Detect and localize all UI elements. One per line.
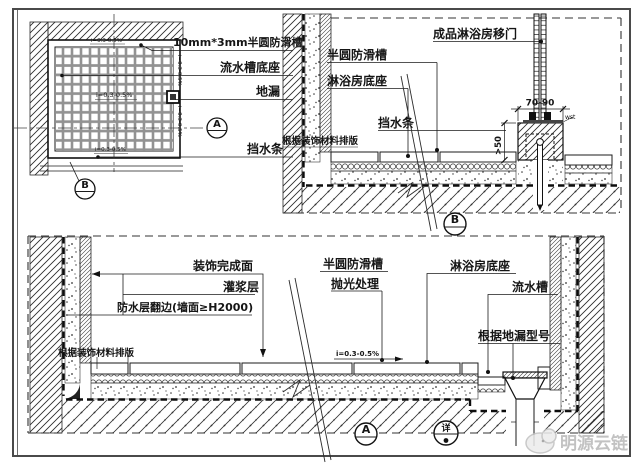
slope-label-center: i=0.3-0.5% (96, 91, 132, 99)
callout-door: 成品淋浴房移门 (433, 26, 517, 41)
section-a: 装饰完成面 灌浆层 防水层翻边(墙面≥H2000) 根据装饰材料排版 半圆防滑槽… (28, 236, 604, 462)
section-b: 70-90 >50 wst 成品淋浴房移门 半圆防滑槽 淋浴房底座 (282, 14, 621, 235)
callout-base: 淋浴房底座 (450, 258, 510, 273)
callout-channel-base: 流水槽底座 (220, 60, 280, 75)
dim-seal: wst (563, 114, 576, 122)
callout-grout: 灌浆层 (222, 279, 259, 294)
slope-label-right-1: i=0.3-0.5% (176, 55, 182, 86)
callout-waterproof: 防水层翻边(墙面≥H2000) (117, 300, 253, 314)
callout-drain: 地漏 (256, 84, 280, 99)
watermark-text: 明源云链 (560, 433, 629, 454)
waterproof-fillet (65, 384, 80, 399)
callout-drain-model: 根据地漏型号 (478, 328, 550, 343)
slope-label: i=0.3-0.5% (336, 350, 379, 358)
svg-text:A: A (213, 119, 221, 130)
svg-text:>50: >50 (494, 136, 504, 155)
svg-text:B: B (81, 180, 89, 191)
section-a-wall-right (550, 237, 604, 433)
callout-finish: 装饰完成面 (192, 258, 253, 273)
drain-flange (503, 372, 547, 378)
callout-channel: 流水槽 (512, 279, 548, 294)
drawing-canvas: i=0.3-0.5% i=0.3-0.5% i=0.3-0.5% i=0.3-0… (0, 0, 640, 467)
callout-polish: 抛光处理 (331, 276, 379, 291)
section-a-callouts-right: 半圆防滑槽 抛光处理 淋浴房底座 流水槽 根据地漏型号 i=0.3-0.5% (320, 256, 560, 380)
detail-bubble: 详 (434, 421, 458, 445)
svg-text:70-90: 70-90 (526, 99, 555, 109)
section-a-bubble: A (355, 423, 377, 445)
slope-label-top: i=0.3-0.5% (91, 38, 122, 44)
slope-label-bottom: i=0.3-0.5% (95, 147, 126, 153)
svg-text:B: B (451, 213, 459, 226)
section-b-wall (283, 14, 331, 213)
section-marker-b: B (70, 162, 95, 199)
slope-label-right-2: i=0.3-0.5% (176, 106, 182, 137)
callout-base: 淋浴房底座 (327, 73, 387, 88)
plan-view: i=0.3-0.5% i=0.3-0.5% i=0.3-0.5% i=0.3-0… (14, 14, 303, 199)
section-b-bubble: B (444, 213, 466, 235)
callout-layout: 根据装饰材料排版 (58, 347, 135, 359)
callout-layout: 根据装饰材料排版 (282, 135, 359, 147)
callout-groove: 半圆防滑槽 (323, 256, 383, 271)
svg-text:详: 详 (441, 422, 450, 434)
plan-wall-left (30, 22, 48, 175)
construction-detail-drawing: i=0.3-0.5% i=0.3-0.5% i=0.3-0.5% i=0.3-0… (0, 0, 640, 467)
svg-text:wst: wst (565, 114, 576, 121)
structural-slab (302, 187, 620, 213)
dim-gt50: >50 (494, 120, 516, 163)
callout-waterstop: 挡水条 (247, 141, 284, 156)
section-b-floor (302, 152, 620, 213)
callout-groove: 半圆防滑槽 (327, 47, 387, 62)
section-marker-a: A (207, 118, 227, 138)
anchor-bolt (538, 143, 543, 205)
break-lines-a (283, 278, 331, 462)
svg-text:A: A (362, 423, 371, 436)
callout-waterstop: 挡水条 (378, 115, 415, 130)
structural-slab-left (62, 400, 468, 433)
